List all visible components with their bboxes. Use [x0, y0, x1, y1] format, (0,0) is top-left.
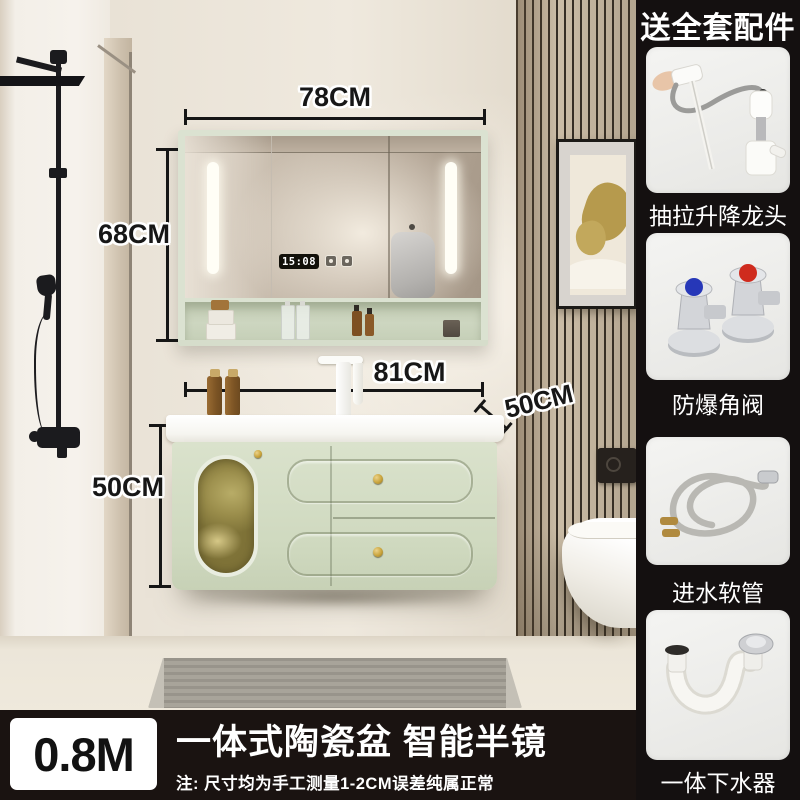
dim-mirror-width-line [185, 117, 486, 120]
shower-pole-clamp [49, 168, 67, 178]
dim-basin-width-tick-left [184, 382, 187, 397]
accessory-label-faucet: 抽拉升降龙头 [636, 197, 800, 231]
drain-pipe-image [646, 610, 790, 760]
ceramic-basin-countertop [166, 415, 504, 442]
soap-bottle-1 [207, 376, 222, 416]
defog-icon [325, 255, 337, 267]
door-glass-oval-window [194, 455, 258, 577]
dim-mirror-width-tick-left [184, 109, 187, 125]
drawer-divider [333, 517, 495, 519]
shower-elbow [50, 50, 67, 64]
size-badge: 0.8M [10, 718, 157, 790]
drawer-top-knob [373, 474, 383, 484]
shelf-dark-box [443, 320, 460, 337]
angle-valves-image [646, 233, 790, 380]
banner-text: 一体式陶瓷盆 智能半镜 注: 尺寸均为手工测量1-2CM误差纯属正常 [176, 714, 626, 794]
glass-partition-column [104, 38, 132, 698]
shelf-clear-bottle-1 [281, 305, 295, 340]
accessories-sidebar: 送全套配件 抽拉升降龙头 [636, 0, 800, 800]
rain-shower-head [0, 76, 85, 86]
accessory-label-hose: 进水软管 [636, 574, 800, 608]
bottom-banner: 0.8M 一体式陶瓷盆 智能半镜 注: 尺寸均为手工测量1-2CM误差纯属正常 [0, 710, 636, 800]
shelf-jar-amber [211, 300, 229, 310]
shelf-dropper-bottle-2 [365, 314, 374, 336]
banner-title: 一体式陶瓷盆 智能半镜 [176, 714, 626, 765]
toilet-seat [568, 522, 638, 539]
mirror-shelf-lip [178, 340, 488, 346]
drawer-bottom-knob [373, 547, 383, 557]
accessory-label-drain: 一体下水器 [636, 764, 800, 798]
wall-art-print [570, 155, 626, 295]
wall-art-frame [556, 139, 637, 309]
basin-faucet-body [336, 362, 351, 418]
dim-cabinet-height-tick-bottom [149, 585, 171, 588]
dim-basin-width-tick-right [481, 382, 484, 397]
accessory-card-hose [646, 437, 790, 565]
dim-mirror-width-label: 78CM [280, 82, 390, 113]
glass-partition-edge [129, 52, 132, 700]
mirror-clock: 15:08 [279, 254, 319, 269]
product-image: 15:08 78CM 68CM 81CM 50CM 50CM [0, 0, 800, 800]
led-strip-left [207, 162, 219, 274]
dim-mirror-height-tick-bottom [156, 339, 178, 342]
flush-plate [597, 448, 637, 483]
mirror-glass: 15:08 [185, 136, 481, 298]
shelf-clear-bottle-2 [296, 305, 310, 340]
dim-mirror-height-label: 68CM [96, 219, 172, 250]
pullout-faucet-image [646, 47, 790, 193]
shower-valve-knob [29, 431, 40, 442]
mirror-door-seam [388, 136, 390, 298]
led-strip-right [445, 162, 457, 274]
shower-hose [34, 312, 62, 434]
basin-faucet-spout [353, 363, 363, 405]
shelf-jar-middle [208, 310, 234, 325]
accessory-card-drain [646, 610, 790, 760]
shelf-dropper-bottle-1 [352, 311, 362, 336]
dim-mirror-width-tick-right [483, 109, 486, 125]
accessory-card-valves [646, 233, 790, 380]
towel-reflection [391, 232, 435, 298]
dim-cabinet-height-line [159, 426, 162, 588]
shower-valve [37, 427, 80, 448]
accessory-card-faucet [646, 47, 790, 193]
dim-basin-width-label: 81CM [352, 357, 467, 388]
soap-bottle-2 [225, 376, 240, 416]
door-knob [254, 450, 262, 458]
flush-button [606, 457, 621, 472]
mirror-wall-reflection [185, 136, 272, 298]
shelf-jar-bottom [206, 323, 236, 340]
towel-hook-reflection [409, 224, 415, 230]
shower-valve-outlet [57, 446, 67, 458]
light-icon [341, 255, 353, 267]
dim-cabinet-height-label: 50CM [90, 472, 166, 503]
accessory-label-valves: 防爆角阀 [636, 386, 800, 420]
banner-note: 注: 尺寸均为手工测量1-2CM误差纯属正常 [176, 770, 626, 794]
sidebar-header: 送全套配件 [636, 3, 800, 47]
dim-mirror-height-tick-top [156, 148, 178, 151]
bath-rug [148, 658, 522, 708]
clock-time: 15:08 [282, 256, 316, 268]
inlet-hose-image [646, 437, 790, 565]
